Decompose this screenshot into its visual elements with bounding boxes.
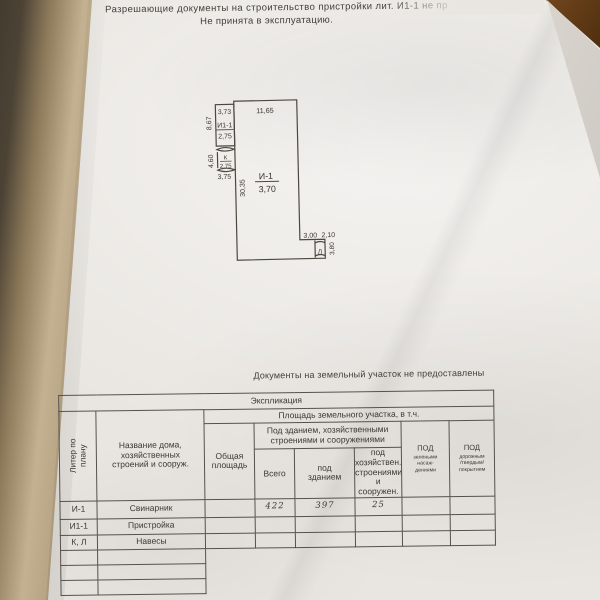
col-header-road-cap: ПОД <box>450 444 494 453</box>
row-green <box>402 497 450 516</box>
row-liter: И1-1 <box>60 519 97 535</box>
extension-liter-label: И1-1 <box>217 122 232 129</box>
col-header-building: под зданием <box>294 448 355 499</box>
main-value-label: 3,70 <box>259 184 276 194</box>
page-content: Разрешающие документы на строительство п… <box>0 0 600 600</box>
col-header-liter-text: Литер по плану <box>67 424 88 488</box>
dim-canopy-left: 4,60 <box>208 154 215 168</box>
row-under-household <box>355 531 402 547</box>
canopy-l-liter-label: Л <box>318 249 322 256</box>
canopy-k-top-edge <box>217 147 235 151</box>
explication-table: Экспликация Литер по плану Название дома… <box>58 390 497 596</box>
main-liter-label: И-1 <box>259 171 273 181</box>
main-fraction-bar <box>255 181 279 182</box>
document-photo: Разрешающие документы на строительство п… <box>0 0 600 600</box>
dim-step-b: 2,10 <box>321 232 335 239</box>
canopy-k-liter-label: К <box>224 155 228 161</box>
row-total <box>205 499 255 518</box>
col-header-road-rest: дорожным /твердым/ покрытием <box>450 453 494 474</box>
row-under-household <box>355 515 402 532</box>
row-road <box>450 514 495 531</box>
canopy-k-value-label: 2,75 <box>220 164 232 170</box>
dim-canopy-l: 3,80 <box>329 242 336 255</box>
col-header-total: Общая площадь <box>204 423 255 499</box>
col-header-liter: Литер по плану <box>59 411 97 501</box>
dim-step-a: 3,00 <box>303 232 317 239</box>
col-header-green-cap: ПОД <box>402 444 449 453</box>
row-total <box>205 533 255 549</box>
dim-below-canopy: 3,75 <box>218 174 232 181</box>
dim-main-left: 30,35 <box>240 179 247 197</box>
under-building-group-header: Под зданием, хозяйственными строениями и… <box>254 421 401 449</box>
dim-ext-left: 8,67 <box>206 116 213 130</box>
row-total <box>205 517 255 534</box>
row-vsego <box>255 532 295 547</box>
col-header-name: Название дома, хозяйственных строений и … <box>96 410 205 501</box>
row-green <box>402 515 450 532</box>
row-vsego-handwritten: 422 <box>255 498 295 516</box>
row-liter: К, Л <box>60 535 97 550</box>
row-name: Навесы <box>97 534 205 550</box>
row-under-building <box>295 532 355 548</box>
row-under-building-handwritten: 397 <box>295 498 355 517</box>
row-road <box>450 530 495 546</box>
col-header-household: под хозяйствен. строениями и сооружен. <box>354 447 402 497</box>
row-under-building <box>295 516 355 533</box>
col-header-road: ПОД дорожным /твердым/ покрытием <box>449 420 495 496</box>
explication-table-wrap: Экспликация Литер по плану Название дома… <box>58 390 497 596</box>
row-liter: И-1 <box>60 501 97 519</box>
col-header-vsego: Всего <box>254 449 295 499</box>
extension-value-label: 2,75 <box>218 133 232 140</box>
canopy-l-top-edge <box>315 241 325 243</box>
col-header-green-rest: зелеными насаж- дениями <box>402 454 449 475</box>
col-header-green: ПОД зелеными насаж- дениями <box>401 421 450 497</box>
row-name: Свинарник <box>97 500 205 519</box>
row-road <box>450 496 495 515</box>
row-under-household-handwritten: 25 <box>355 497 402 516</box>
row-name: Пристройка <box>97 518 205 535</box>
dim-ext-width: 3,73 <box>218 109 232 116</box>
row-green <box>402 531 450 547</box>
dim-main-width: 11,65 <box>256 106 274 115</box>
row-vsego <box>255 516 295 532</box>
